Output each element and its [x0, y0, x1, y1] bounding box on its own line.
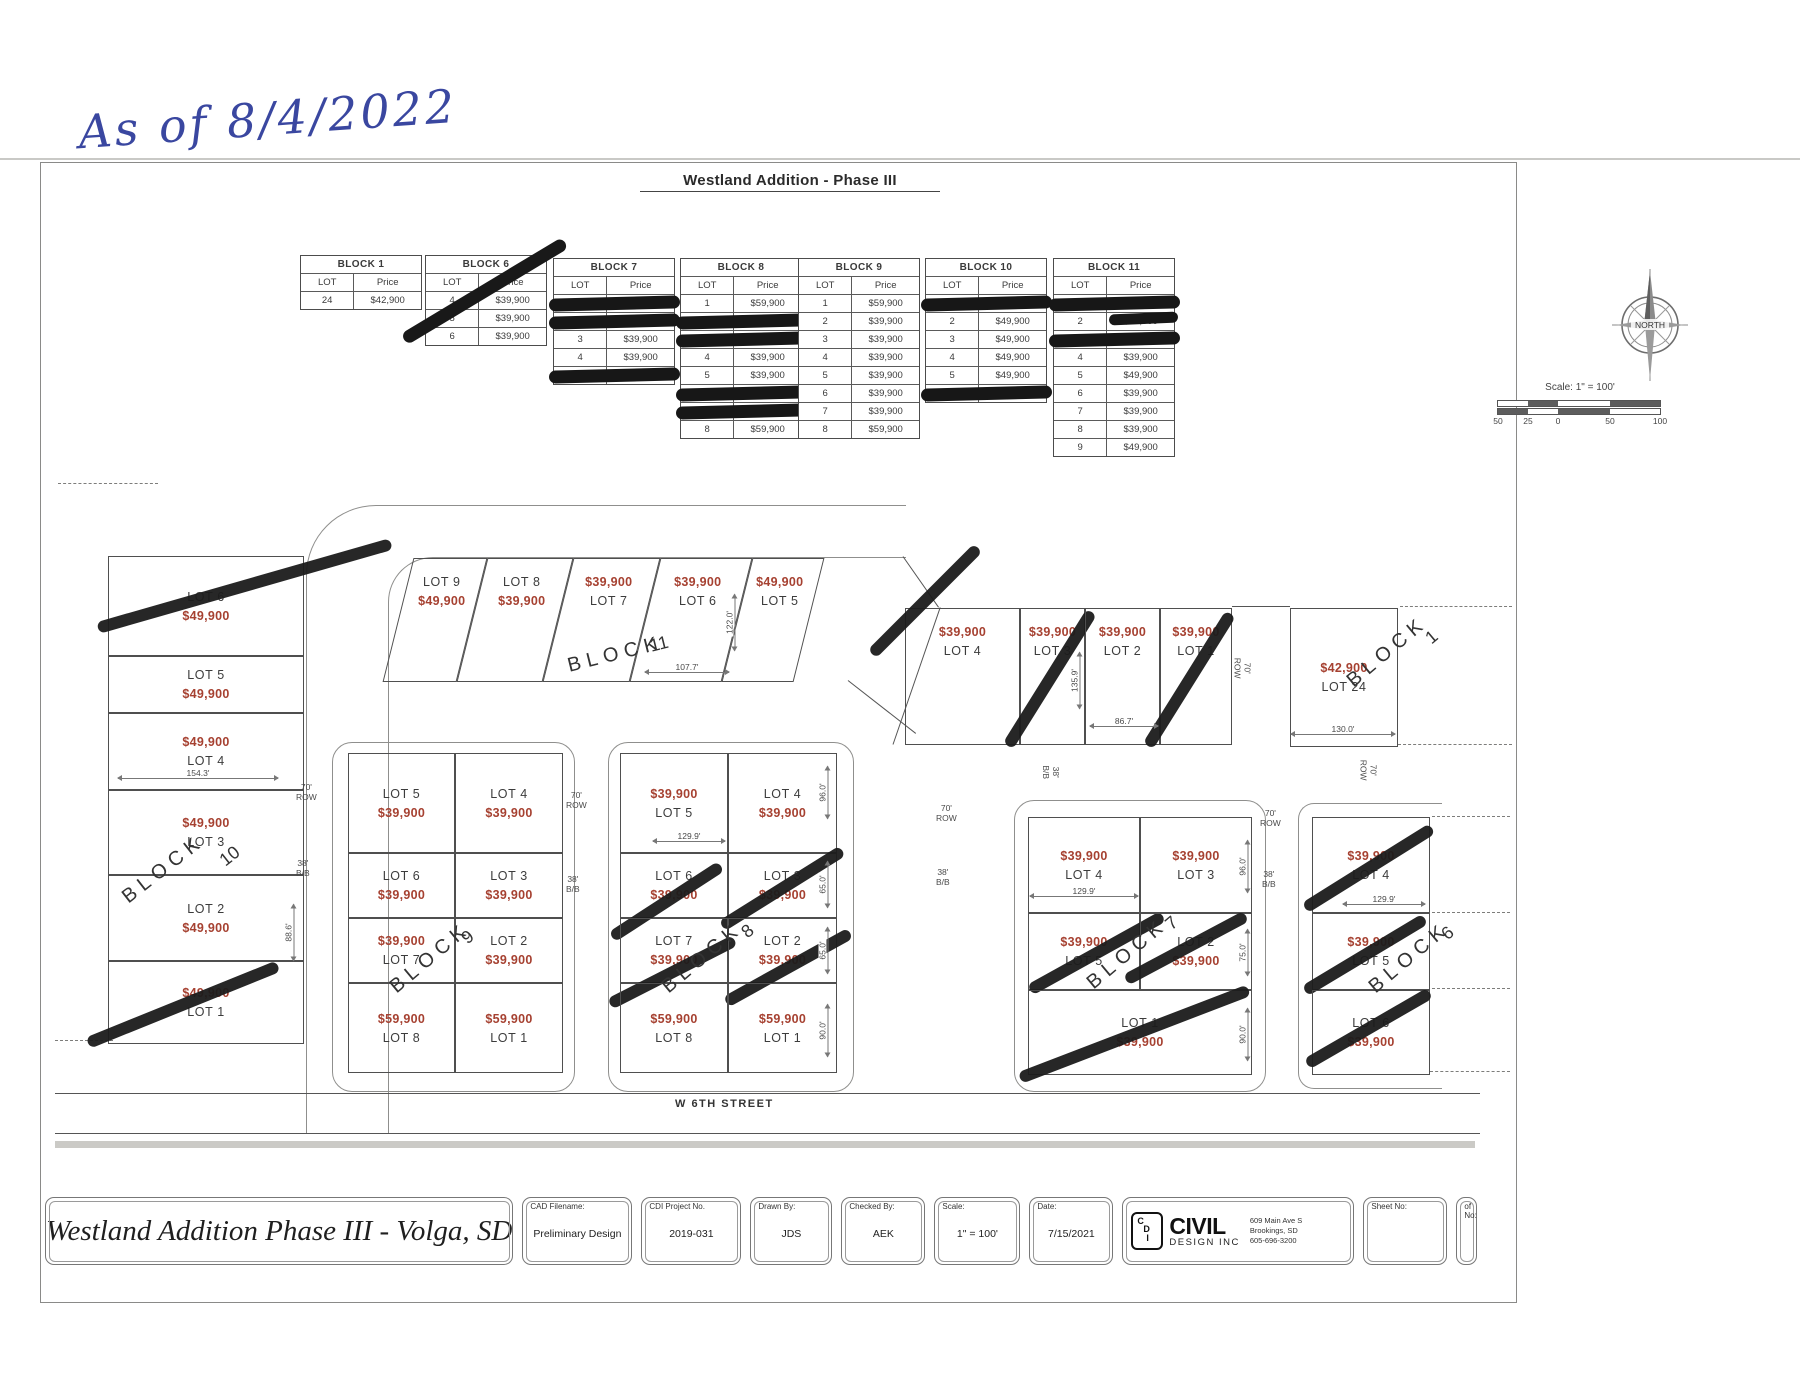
price-cell: $39,900	[607, 331, 674, 348]
lot-column-header: LOT	[1054, 277, 1107, 294]
dimension-label: 86.7'	[1090, 718, 1158, 727]
lot-cell: 4	[1054, 349, 1107, 366]
lot-price: $49,900	[182, 921, 229, 935]
dimension-label: 90.0'	[820, 1005, 829, 1057]
table-title: BLOCK 8	[681, 259, 801, 276]
plat-boundary-dash	[1430, 1071, 1510, 1072]
lot-price: $49,900	[182, 735, 229, 749]
lot-label: LOT 3	[1177, 868, 1215, 882]
lot-label: LOT 9	[423, 575, 461, 589]
lot-b9-3: LOT 3$39,900	[455, 853, 563, 918]
table-row: 3$39,900	[554, 330, 674, 348]
lot-price: $59,900	[378, 1012, 425, 1026]
lot-b10-3: $49,900LOT 3	[108, 790, 304, 875]
lot-price: $39,900	[498, 594, 545, 608]
lot-label: LOT 4	[944, 644, 982, 658]
lot-price: $49,900	[182, 816, 229, 830]
table-header-row: LOTPrice	[799, 276, 919, 294]
table-row: 5	[554, 366, 674, 384]
price-column-header: Price	[734, 277, 801, 294]
lot-price: $49,900	[418, 594, 465, 608]
lot-label: LOT 5	[761, 594, 799, 608]
road-label: 38' B/B	[296, 858, 310, 878]
lot-text: LOT 2$49,900	[182, 902, 229, 935]
lot-text: $39,900LOT 2	[1099, 625, 1146, 658]
price-cell: $39,900	[479, 310, 546, 327]
lot-column-header: LOT	[426, 274, 479, 291]
lot-b10-5: LOT 5$49,900	[108, 656, 304, 713]
lot-text: $39,900LOT 5	[650, 787, 697, 820]
table-title: BLOCK 9	[799, 259, 919, 276]
dimension-label: 154.3'	[118, 770, 278, 779]
table-row: 1$59,900	[799, 294, 919, 312]
price-cell: $39,900	[852, 367, 919, 384]
price-cell: $49,900	[979, 331, 1046, 348]
lot-cell: 3	[799, 331, 852, 348]
road-label: 70' ROW	[936, 803, 957, 823]
lot-price: $59,900	[650, 1012, 697, 1026]
lot-price: $39,900	[674, 575, 721, 589]
lot-text: $39,900LOT 7	[585, 575, 632, 608]
lot-text: LOT 4$39,900	[485, 787, 532, 820]
lot-label: LOT 5	[383, 787, 421, 801]
lot-text: LOT 2$39,900	[485, 934, 532, 967]
table-header-row: LOTPrice	[554, 276, 674, 294]
price-column-header: Price	[354, 274, 421, 291]
lot-price: $39,900	[1060, 849, 1107, 863]
lot-label: LOT 6	[679, 594, 717, 608]
lot-price: $59,900	[485, 1012, 532, 1026]
price-cell: $59,900	[734, 421, 801, 438]
table-row: 6$39,900	[426, 327, 546, 345]
lot-cell: 8	[799, 421, 852, 438]
dimension-label: 107.7'	[645, 664, 729, 673]
table-row: 2$49,900	[926, 312, 1046, 330]
dimension-label: 129.9'	[653, 833, 725, 842]
field-sheet-no: Sheet No:	[1363, 1197, 1447, 1265]
lot-b11-4: $39,900LOT 4	[905, 608, 1020, 745]
lot-text: LOT 5$49,900	[182, 668, 229, 701]
table-row: 2	[554, 312, 674, 330]
price-table-block-9: BLOCK 9LOTPrice1$59,9002$39,9003$39,9004…	[798, 258, 920, 439]
lot-text: $39,900LOT 4	[939, 625, 986, 658]
lot-cell: 6	[1054, 385, 1107, 402]
lot-price: $39,900	[1099, 625, 1146, 639]
lot-cell: 1	[681, 295, 734, 312]
table-title: BLOCK 7	[554, 259, 674, 276]
drawing-title: Westland Addition Phase III - Volga, SD	[46, 1215, 512, 1248]
scale-ticks: 50 25 0 50 100	[1497, 415, 1661, 426]
road-label: 38' B/B	[566, 874, 580, 894]
lot-price: $39,900	[485, 953, 532, 967]
lot-b9-2: LOT 2$39,900	[455, 918, 563, 983]
lot-text: $39,900LOT 6	[674, 575, 721, 608]
road-label: 70' ROW	[1232, 658, 1252, 679]
lot-label: LOT 1	[764, 1031, 802, 1045]
lot-column-header: LOT	[799, 277, 852, 294]
price-cell: $39,900	[1107, 403, 1174, 420]
lot-price: $49,900	[182, 687, 229, 701]
field-project-no: CDI Project No. 2019-031	[641, 1197, 741, 1265]
table-row: 5$39,900	[799, 366, 919, 384]
lot-cell: 9	[1054, 439, 1107, 456]
lot-cell: 7	[1054, 403, 1107, 420]
lot-b9-4: LOT 4$39,900	[455, 753, 563, 853]
lot-label: LOT 8	[503, 575, 541, 589]
lot-b9-5: LOT 5$39,900	[348, 753, 455, 853]
price-cell: $39,900	[1107, 349, 1174, 366]
lot-cell: 6	[426, 328, 479, 345]
lot-label: LOT 6	[383, 869, 421, 883]
price-column-header: Price	[979, 277, 1046, 294]
lot-text: LOT 4$39,900	[759, 787, 806, 820]
lot-price: $39,900	[378, 888, 425, 902]
table-row: 2	[681, 312, 801, 330]
field-cad-filename: CAD Filename: Preliminary Design	[522, 1197, 632, 1265]
dimension-label: 65.0'	[820, 862, 829, 908]
price-cell: $49,900	[1107, 439, 1174, 456]
company-address: 609 Main Ave S Brookings, SD 605-696-320…	[1250, 1216, 1302, 1246]
table-row: 8$59,900	[681, 420, 801, 438]
svg-text:NORTH: NORTH	[1635, 320, 1665, 330]
price-cell: $39,900	[734, 349, 801, 366]
price-cell: $39,900	[734, 367, 801, 384]
lot-text: LOT 8$39,900	[498, 575, 545, 608]
price-cell: $39,900	[1107, 385, 1174, 402]
dimension-label: 130.0'	[1291, 726, 1395, 735]
price-cell: $39,900	[1107, 421, 1174, 438]
road-label: 70' ROW	[1358, 760, 1378, 781]
lot-label: LOT 5	[187, 668, 225, 682]
lot-label: LOT 4	[764, 787, 802, 801]
table-row: 1	[926, 294, 1046, 312]
scan-crease-line	[0, 158, 1800, 160]
table-row: 6	[681, 384, 801, 402]
price-table-block-6: BLOCK 6LOTPrice4$39,9005$39,9006$39,900	[425, 255, 547, 346]
dimension-label: 65.0'	[820, 928, 829, 974]
table-row: 1$59,900	[681, 294, 801, 312]
title-block: Westland Addition Phase III - Volga, SD …	[45, 1197, 1477, 1265]
lot-b9-6: LOT 6$39,900	[348, 853, 455, 918]
lot-cell: 4	[681, 349, 734, 366]
scale-bar-top	[1497, 400, 1661, 407]
lot-price: $39,900	[650, 787, 697, 801]
lot-label: LOT 2	[187, 902, 225, 916]
lot-label: LOT 2	[764, 934, 802, 948]
lot-price: $39,900	[485, 806, 532, 820]
lot-price: $39,900	[378, 806, 425, 820]
table-row: 8$39,900	[1054, 420, 1174, 438]
table-title: BLOCK 11	[1054, 259, 1174, 276]
lot-text: $59,900LOT 8	[650, 1012, 697, 1045]
lot-label: LOT 2	[1104, 644, 1142, 658]
lot-price: $39,900	[485, 888, 532, 902]
dimension-label: 135.9'	[1072, 653, 1081, 709]
table-row: 6$39,900	[799, 384, 919, 402]
lot-text: $49,900LOT 4	[182, 735, 229, 768]
table-row: 4$39,900	[681, 348, 801, 366]
table-row: 24$42,900	[301, 291, 421, 309]
table-row: 3	[1054, 330, 1174, 348]
street-paving-band	[55, 1141, 1475, 1148]
lot-label: LOT 5	[655, 806, 693, 820]
lot-cell: 2	[799, 313, 852, 330]
price-table-block-7: BLOCK 7LOTPrice123$39,9004$39,9005	[553, 258, 675, 385]
lot-cell: 6	[799, 385, 852, 402]
lot-cell: 3	[926, 331, 979, 348]
lot-b7-4: $39,900LOT 4	[1028, 817, 1140, 913]
table-row: 1	[1054, 294, 1174, 312]
price-cell: $49,900	[979, 313, 1046, 330]
dimension-label: 96.0'	[1240, 841, 1249, 893]
table-row: 6	[926, 384, 1046, 402]
lot-label: LOT 7	[590, 594, 628, 608]
lot-cell: 5	[926, 367, 979, 384]
lot-column-header: LOT	[301, 274, 354, 291]
cdi-logo-icon: C D I	[1131, 1212, 1163, 1250]
plat-boundary-dash	[1432, 988, 1510, 989]
field-of-no: of No:	[1456, 1197, 1477, 1265]
lot-b9-1: $59,900LOT 1	[455, 983, 563, 1073]
lot-price: $39,900	[759, 806, 806, 820]
field-date: Date: 7/15/2021	[1029, 1197, 1113, 1265]
lot-cell: 4	[799, 349, 852, 366]
table-row: 9$49,900	[1054, 438, 1174, 456]
lot-price: $59,900	[759, 1012, 806, 1026]
price-cell: $59,900	[852, 295, 919, 312]
table-row: 7$39,900	[799, 402, 919, 420]
lot-cell: 5	[799, 367, 852, 384]
table-row: 4$39,900	[554, 348, 674, 366]
lot-text: $59,900LOT 1	[485, 1012, 532, 1045]
road-label: 38' B/B	[1262, 869, 1276, 889]
price-cell: $39,900	[852, 331, 919, 348]
sheet-title: Westland Addition - Phase III	[640, 172, 940, 192]
table-row: 4$39,900	[1054, 348, 1174, 366]
table-header-row: LOTPrice	[926, 276, 1046, 294]
street-name-label: W 6TH STREET	[675, 1098, 774, 1110]
lot-cell: 5	[681, 367, 734, 384]
lot-label: LOT 8	[383, 1031, 421, 1045]
price-cell: $49,900	[979, 349, 1046, 366]
price-cell: $42,900	[354, 292, 421, 309]
table-row: 7$39,900	[1054, 402, 1174, 420]
field-drawn-by: Drawn By: JDS	[750, 1197, 832, 1265]
table-row: 7	[681, 402, 801, 420]
price-table-block-11: BLOCK 11LOTPrice12$39,90034$39,9005$49,9…	[1053, 258, 1175, 457]
table-row: 1	[554, 294, 674, 312]
table-header-row: LOTPrice	[301, 273, 421, 291]
road-label: 70' ROW	[1260, 808, 1281, 828]
lot-cell: 4	[554, 349, 607, 366]
lot-label: LOT 4	[490, 787, 528, 801]
lot-text: LOT 5$39,900	[378, 787, 425, 820]
lot-column-header: LOT	[554, 277, 607, 294]
lot-column-header: LOT	[681, 277, 734, 294]
price-cell: $39,900	[607, 349, 674, 366]
road-label: 70' ROW	[566, 790, 587, 810]
dimension-label: 129.9'	[1343, 896, 1425, 905]
lot-label: LOT 3	[490, 869, 528, 883]
price-column-header: Price	[852, 277, 919, 294]
lot-text: $59,900LOT 1	[759, 1012, 806, 1045]
plat-boundary-dash	[1398, 744, 1512, 745]
dimension-label: 122.0'	[727, 595, 736, 651]
price-table-block-10: BLOCK 10LOTPrice12$49,9003$49,9004$49,90…	[925, 258, 1047, 403]
lot-cell: 8	[681, 421, 734, 438]
table-row: 2$39,900	[1054, 312, 1174, 330]
lot-price: $39,900	[585, 575, 632, 589]
dimension-label: 75.0'	[1240, 930, 1249, 976]
lot-cell: 24	[301, 292, 354, 309]
lot-price: $39,900	[1172, 849, 1219, 863]
price-cell: $59,900	[734, 295, 801, 312]
lot-text: LOT 6$39,900	[378, 869, 425, 902]
lot-label: LOT 4	[187, 754, 225, 768]
plat-map-scan: As of 8/4/2022 Westland Addition - Phase…	[0, 0, 1800, 1391]
lot-b8-6: LOT 6$39,900	[620, 853, 728, 918]
lot-price: $49,900	[756, 575, 803, 589]
lot-cell: 1	[799, 295, 852, 312]
lot-text: LOT 3$39,900	[485, 869, 532, 902]
road-label: 70' ROW	[296, 782, 317, 802]
price-cell: $49,900	[979, 367, 1046, 384]
table-title: BLOCK 1	[301, 256, 421, 273]
lot-cell: 2	[1054, 313, 1107, 330]
lot-price: $39,900	[378, 934, 425, 948]
lot-cell: 8	[1054, 421, 1107, 438]
table-row: 8$59,900	[799, 420, 919, 438]
lot-text: $39,900LOT 4	[1060, 849, 1107, 882]
dimension-label: 88.6'	[286, 905, 295, 961]
street-line	[55, 1093, 1480, 1094]
table-title: BLOCK 10	[926, 259, 1046, 276]
price-cell: $39,900	[852, 349, 919, 366]
table-header-row: LOTPrice	[1054, 276, 1174, 294]
table-row: 6$39,900	[1054, 384, 1174, 402]
drawing-title-box: Westland Addition Phase III - Volga, SD	[45, 1197, 513, 1265]
price-cell: $39,900	[852, 385, 919, 402]
plat-boundary-dash	[1400, 606, 1512, 607]
lot-label: LOT 7	[655, 934, 693, 948]
price-cell: $39,900	[852, 403, 919, 420]
table-row: 3$39,900	[799, 330, 919, 348]
table-row: 3	[681, 330, 801, 348]
lot-cell: 3	[554, 331, 607, 348]
company-box: C D I CIVIL DESIGN INC 609 Main Ave S Br…	[1122, 1197, 1354, 1265]
field-checked-by: Checked By: AEK	[841, 1197, 925, 1265]
lot-column-header: LOT	[926, 277, 979, 294]
price-cell: $39,900	[479, 328, 546, 345]
price-cell: $49,900	[1107, 367, 1174, 384]
price-table-block-1: BLOCK 1LOTPrice24$42,900	[300, 255, 422, 310]
plat-boundary-dash	[1432, 912, 1510, 913]
lot-text: $39,900LOT 3	[1172, 849, 1219, 882]
price-cell: $59,900	[852, 421, 919, 438]
dimension-label: 90.0'	[1240, 1009, 1249, 1061]
price-table-block-8: BLOCK 8LOTPrice1$59,900234$39,9005$39,90…	[680, 258, 802, 439]
table-row: 4$39,900	[799, 348, 919, 366]
lot-label: LOT 4	[1065, 868, 1103, 882]
price-cell: $39,900	[852, 313, 919, 330]
lot-cell: 5	[1054, 367, 1107, 384]
lot-price: $39,900	[939, 625, 986, 639]
road-label: 38' B/B	[936, 867, 950, 887]
scale-bar: 50 25 0 50 100	[1497, 400, 1661, 426]
scale-bar-bottom	[1497, 408, 1661, 415]
lot-cell: 2	[926, 313, 979, 330]
dimension-label: 129.9'	[1030, 888, 1138, 897]
lot-text: $59,900LOT 8	[378, 1012, 425, 1045]
compass-rose-icon: NORTH	[1606, 266, 1694, 384]
scale-label: Scale: 1" = 100'	[1500, 382, 1660, 393]
table-row: 5$39,900	[681, 366, 801, 384]
street-line	[1232, 606, 1290, 607]
street-line	[55, 1133, 1480, 1134]
lot-cell: 4	[926, 349, 979, 366]
lot-cell: 7	[799, 403, 852, 420]
table-row: 3$49,900	[926, 330, 1046, 348]
table-row: 5$49,900	[926, 366, 1046, 384]
handwritten-date-note: As of 8/4/2022	[77, 79, 459, 159]
dimension-label: 96.0'	[820, 767, 829, 819]
table-row: 5$49,900	[1054, 366, 1174, 384]
lot-label: LOT 2	[490, 934, 528, 948]
price-column-header: Price	[607, 277, 674, 294]
lot-price: $49,900	[182, 609, 229, 623]
lot-label: LOT 8	[655, 1031, 693, 1045]
plat-boundary-dash	[58, 483, 158, 484]
lot-label: LOT 1	[490, 1031, 528, 1045]
price-column-header: Price	[1107, 277, 1174, 294]
lot-b7-3: $39,900LOT 3	[1140, 817, 1252, 913]
table-row: 2$39,900	[799, 312, 919, 330]
lot-text: LOT 9$49,900	[418, 575, 465, 608]
road-label: 38' B/B	[1041, 765, 1061, 779]
table-header-row: LOTPrice	[681, 276, 801, 294]
table-row: 4$49,900	[926, 348, 1046, 366]
plat-boundary-dash	[1432, 816, 1510, 817]
field-scale: Scale: 1" = 100'	[934, 1197, 1020, 1265]
company-name: CIVIL DESIGN INC	[1169, 1215, 1239, 1248]
lot-text: $49,900LOT 5	[756, 575, 803, 608]
